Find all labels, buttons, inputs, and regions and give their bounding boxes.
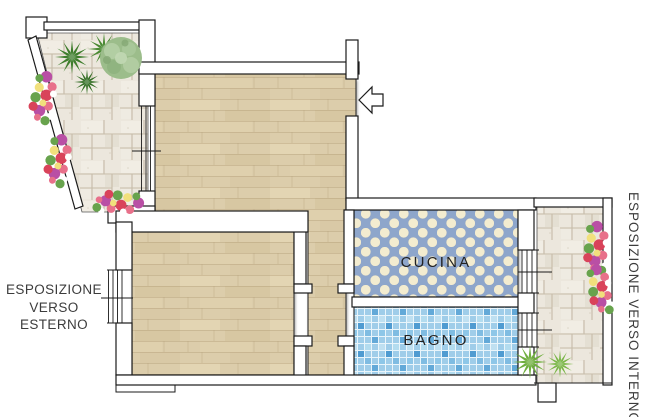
kitchen-label: CUCINA [354,254,518,271]
floor-plan-drawing [0,0,655,417]
exposure-left-line3: ESTERNO [0,316,108,334]
terrace-parapet-top [44,22,148,30]
window-living-room [139,106,153,191]
bedroom-floor [132,232,294,375]
bathroom-label: BAGNO [354,332,518,349]
exposure-left-label: ESPOSIZIONE VERSO ESTERNO [0,281,108,334]
right-terrace-parapet-top [534,198,612,207]
entrance-arrow-icon [359,87,383,113]
bottom-wall [116,375,536,385]
bush-plant [100,37,142,79]
window-bedroom [107,270,124,323]
right-terrace-post [538,383,556,402]
exposure-right-label: ESPOSIZIONE VERSO INTERNO [626,192,641,404]
floor-plan-page: CUCINA BAGNO ESPOSIZIONE VERSO ESTERNO E… [0,0,655,417]
exposure-left-line2: VERSO [0,299,108,317]
exposure-left-line1: ESPOSIZIONE [0,281,108,299]
